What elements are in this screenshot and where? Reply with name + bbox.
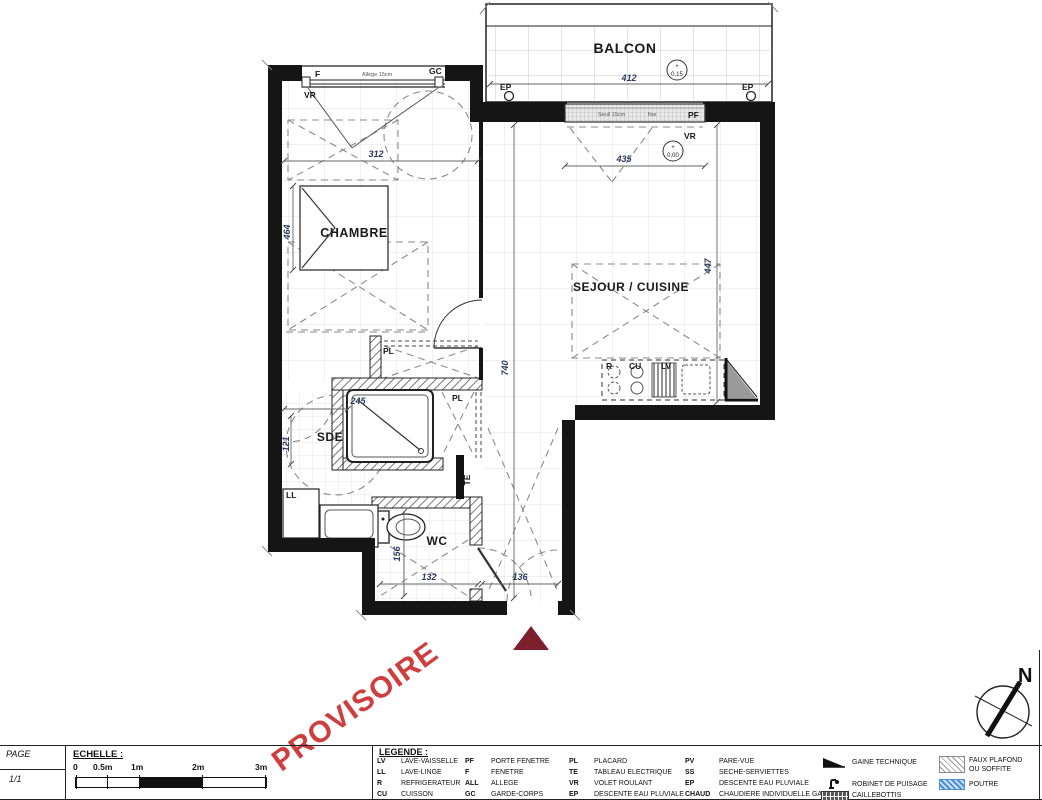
legend-label: DESCENTE EAU PLUVIALE: [719, 780, 809, 787]
legend-label: PARE-VUE: [719, 758, 754, 765]
legend-abbr: EP: [569, 791, 578, 798]
legend-label: GARDE-CORPS: [491, 791, 543, 798]
te-label: TE: [462, 474, 472, 485]
legend-label: ROBINET DE PUISAGE: [852, 781, 928, 788]
dim-chambre-width: 312: [368, 149, 383, 159]
fixe-label: fixe: [648, 112, 657, 118]
legend-label: LAVE-LINGE: [401, 769, 442, 776]
legend-abbr: SS: [685, 769, 694, 776]
legend-label: OU SOFFITE: [969, 766, 1011, 773]
caillebottis-icon: [821, 791, 849, 800]
legend-label: FENETRE: [491, 769, 524, 776]
north-letter: N: [1018, 665, 1032, 687]
legend-label: FAUX PLAFOND: [969, 757, 1022, 764]
vr-label-bay: VR: [684, 131, 696, 141]
room-label-sejour: SEJOUR / CUISINE: [573, 280, 689, 294]
legend-abbr: PF: [465, 758, 474, 765]
legend-abbr: VR: [569, 780, 579, 787]
legend-abbr: CHAUD: [685, 791, 710, 798]
legend-abbr: ALL: [465, 780, 479, 787]
balcony-door-sill: [565, 104, 705, 122]
dim-hall-length: 740: [500, 360, 510, 375]
legend-abbr: R: [377, 780, 382, 787]
room-label-chambre: CHAMBRE: [320, 226, 387, 240]
pl-label-2: PL: [452, 393, 463, 403]
legend-label: CUISSON: [401, 791, 433, 798]
level-plus: +: [675, 64, 679, 70]
divider: [0, 769, 65, 770]
legend-box: LEGENDE : LV LAVE-VAISSELLE LL LAVE-LING…: [372, 746, 1042, 800]
title-block: PAGE 1/1 ECHELLE : 0 0.5m 1m 2m 3m LEGEN…: [0, 745, 1042, 800]
level-plus: +: [671, 145, 675, 151]
ep-label-right: EP: [742, 82, 754, 92]
page-box: PAGE 1/1: [0, 746, 66, 800]
faux-plafond-icon: [939, 756, 965, 773]
page-number: 1/1: [9, 774, 22, 784]
legend-abbr: F: [465, 769, 469, 776]
f-label: F: [315, 69, 320, 79]
allege-label: Allège 15cm: [362, 72, 393, 78]
scale-tick-0: 0: [73, 762, 78, 772]
dim-bay-width: 435: [615, 154, 632, 164]
legend-label: GAINE TECHNIQUE: [852, 759, 917, 766]
scale-tick-05m: 0.5m: [93, 762, 112, 772]
legend-title: LEGENDE :: [379, 747, 428, 757]
scale-tick-2m: 2m: [192, 762, 204, 772]
legend-abbr: TE: [569, 769, 578, 776]
page-label: PAGE: [6, 749, 30, 759]
legend-abbr: GC: [465, 791, 476, 798]
legend-label: DESCENTE EAU PLUVIALE: [594, 791, 684, 798]
legend-abbr: EP: [685, 780, 694, 787]
legend-abbr: LV: [377, 758, 385, 765]
legend-label: ALLEGE: [491, 780, 518, 787]
legend-label: LAVE-VAISSELLE: [401, 758, 458, 765]
legend-abbr: LL: [377, 769, 386, 776]
legend-abbr: CU: [377, 791, 387, 798]
scale-label: ECHELLE :: [73, 749, 123, 760]
legend-label: POUTRE: [969, 781, 998, 788]
r-label: R: [606, 361, 612, 371]
lv-label: LV: [661, 361, 672, 371]
scale-box: ECHELLE : 0 0.5m 1m 2m 3m: [65, 746, 373, 800]
legend-label: PLACARD: [594, 758, 627, 765]
poutre-icon: [939, 779, 965, 790]
scale-bar: [75, 777, 267, 788]
dim-wc-depth: 156: [392, 546, 402, 562]
seuil-label: Seuil 15cm: [598, 112, 626, 118]
north-compass: N: [975, 665, 1032, 738]
room-label-sde: SDE: [317, 430, 343, 444]
gaine-technique-icon: [821, 756, 847, 769]
room-label-wc: WC: [427, 534, 448, 548]
legend-label: TABLEAU ELECTRIQUE: [594, 769, 672, 776]
legend-label: SECHE-SERVIETTES: [719, 769, 789, 776]
legend-label: REFRIGERATEUR: [401, 780, 460, 787]
dim-chambre-depth: 464: [282, 224, 292, 240]
level-value-interior: 0,00: [667, 153, 679, 159]
floor-plan-sheet: + 0,15 + 0,00 BALCON CHAMBRE SEJOUR / CU…: [0, 0, 1042, 800]
pf-label: PF: [688, 110, 699, 120]
legend-abbr: PV: [685, 758, 694, 765]
legend-label: CAILLEBOTTIS: [852, 792, 901, 799]
robinet-de-puisage-icon: [828, 777, 841, 790]
legend-abbr: PL: [569, 758, 578, 765]
dim-sde-depth: 121: [281, 436, 291, 451]
dim-sde-width: 245: [349, 396, 366, 406]
scale-tick-3m: 3m: [255, 762, 267, 772]
entry-marker-triangle: [513, 626, 549, 650]
scale-tick-1m: 1m: [131, 762, 143, 772]
legend-label: PORTE FENETRE: [491, 758, 550, 765]
ll-label: LL: [286, 490, 296, 500]
level-value-balcony: 0,15: [671, 72, 683, 78]
floor-plan-drawing: + 0,15 + 0,00 BALCON CHAMBRE SEJOUR / CU…: [0, 0, 1042, 745]
dim-wc-width: 132: [421, 572, 436, 582]
ep-label-left: EP: [500, 82, 512, 92]
pl-label-1: PL: [383, 346, 394, 356]
scale-bar-fill: [139, 778, 202, 787]
cu-label: CU: [629, 361, 641, 371]
legend-label: VOLET ROULANT: [594, 780, 652, 787]
room-label-balcon: BALCON: [594, 40, 657, 56]
dim-entry-width: 136: [512, 572, 528, 582]
vr-label-window: VR: [304, 90, 316, 100]
dim-balcony-width: 412: [620, 73, 636, 83]
gc-label: GC: [429, 66, 442, 76]
dim-sejour-depth: 447: [703, 258, 713, 275]
legend-label: CHAUDIERE INDIVIDUELLE GAZ: [719, 791, 826, 798]
